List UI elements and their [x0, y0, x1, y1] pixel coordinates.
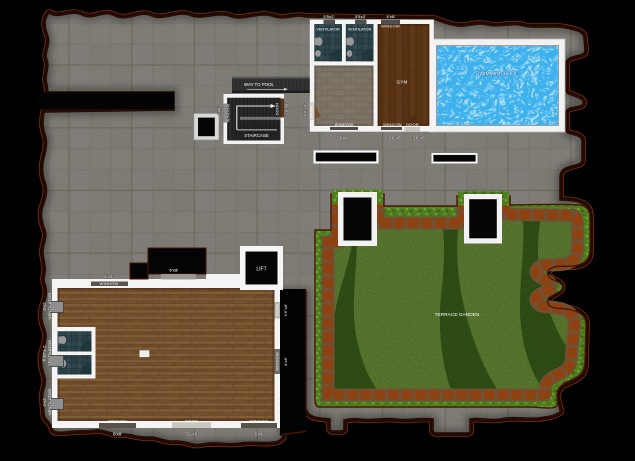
svg-text:GYM: GYM — [396, 80, 407, 85]
svg-text:DOOR: DOOR — [185, 418, 198, 423]
svg-text:3'6"x8': 3'6"x8' — [185, 432, 198, 437]
svg-text:STAIRCASE: STAIRCASE — [244, 133, 269, 138]
svg-text:WINDOW: WINDOW — [335, 122, 354, 127]
svg-text:WINDOW: WINDOW — [383, 122, 402, 127]
svg-text:WINDOW: WINDOW — [108, 418, 127, 423]
svg-text:3'x2': 3'x2' — [42, 397, 47, 406]
svg-text:DOOR: DOOR — [275, 304, 280, 317]
svg-text:4'6"x8': 4'6"x8' — [303, 103, 308, 116]
svg-text:6'x8': 6'x8' — [105, 274, 114, 279]
svg-text:2'6"x8': 2'6"x8' — [389, 136, 402, 141]
svg-text:DOOR: DOOR — [325, 61, 338, 66]
svg-text:6'x8': 6'x8' — [113, 432, 122, 437]
svg-text:WINDOW: WINDOW — [100, 281, 119, 286]
svg-text:VENTILATOR: VENTILATOR — [47, 389, 52, 416]
svg-text:6'x8': 6'x8' — [340, 136, 349, 141]
svg-text:6'x8': 6'x8' — [255, 432, 264, 437]
svg-text:WINDOW: WINDOW — [250, 418, 269, 423]
svg-text:4'6"x8': 4'6"x8' — [283, 303, 288, 316]
svg-text:LIFT: LIFT — [256, 267, 266, 273]
svg-text:6'10"x 2': 6'10"x 2' — [42, 345, 47, 362]
svg-text:VENTILATOR: VENTILATOR — [47, 340, 52, 367]
svg-text:DOOR: DOOR — [406, 122, 419, 127]
svg-text:WINDOW: WINDOW — [225, 104, 230, 123]
svg-text:4'x8': 4'x8' — [216, 106, 221, 115]
svg-text:WAY TO POOL: WAY TO POOL — [244, 82, 275, 87]
svg-text:DOOR: DOOR — [309, 106, 314, 119]
svg-text:WINDOW: WINDOW — [167, 279, 186, 284]
svg-text:3'5x2': 3'5x2' — [355, 14, 366, 19]
svg-text:6'x8': 6'x8' — [170, 268, 179, 273]
svg-text:3'5x2': 3'5x2' — [323, 14, 334, 19]
svg-text:3'x2': 3'x2' — [42, 301, 47, 310]
svg-text:3'8"x8': 3'8"x8' — [284, 102, 289, 115]
svg-text:VENTILATOR: VENTILATOR — [316, 28, 340, 32]
svg-text:WINDOW: WINDOW — [381, 24, 400, 29]
svg-text:VENTILATOR: VENTILATOR — [47, 293, 52, 320]
svg-text:WINDOW: WINDOW — [275, 352, 280, 371]
svg-text:SWIMMING POOL: SWIMMING POOL — [476, 72, 518, 78]
svg-text:DOOR: DOOR — [275, 103, 280, 116]
svg-text:VENTILATOR: VENTILATOR — [348, 28, 372, 32]
svg-text:4'x8': 4'x8' — [387, 14, 396, 19]
svg-text:3'8"x8': 3'8"x8' — [413, 136, 426, 141]
svg-text:4'x8': 4'x8' — [283, 357, 288, 366]
svg-text:TERRACE GARDEN: TERRACE GARDEN — [435, 312, 480, 318]
svg-text:DOOR: DOOR — [358, 61, 371, 66]
